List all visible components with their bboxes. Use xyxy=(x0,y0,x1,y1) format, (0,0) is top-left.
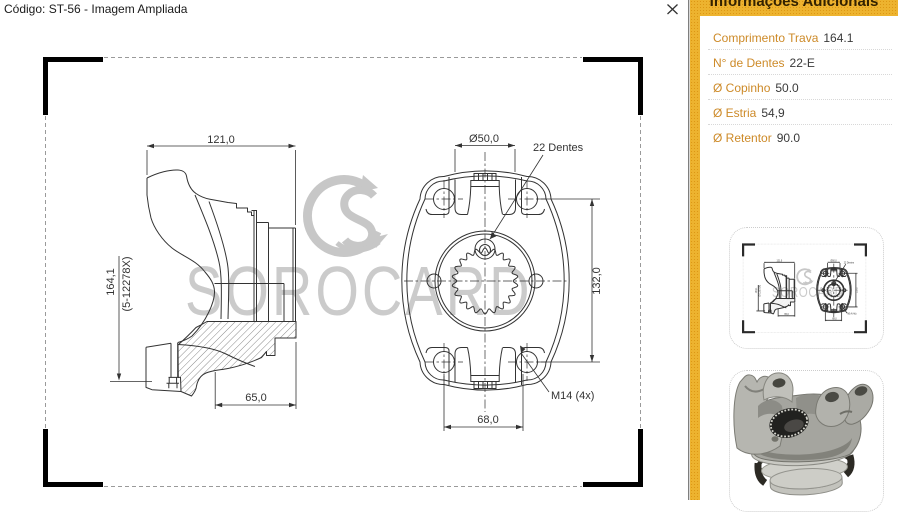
svg-text:SOROCARD: SOROCARD xyxy=(185,253,533,330)
svg-text:Ø50,0: Ø50,0 xyxy=(469,133,499,145)
svg-text:(5-12278X): (5-12278X) xyxy=(121,256,133,311)
svg-text:68,0: 68,0 xyxy=(477,414,498,426)
svg-text:164,1: 164,1 xyxy=(105,268,117,296)
svg-text:M14 (4x): M14 (4x) xyxy=(551,390,594,402)
svg-text:22 Dentes: 22 Dentes xyxy=(533,142,584,154)
svg-text:121,0: 121,0 xyxy=(207,134,235,146)
svg-text:65,0: 65,0 xyxy=(245,392,266,404)
svg-text:132,0: 132,0 xyxy=(591,267,603,295)
